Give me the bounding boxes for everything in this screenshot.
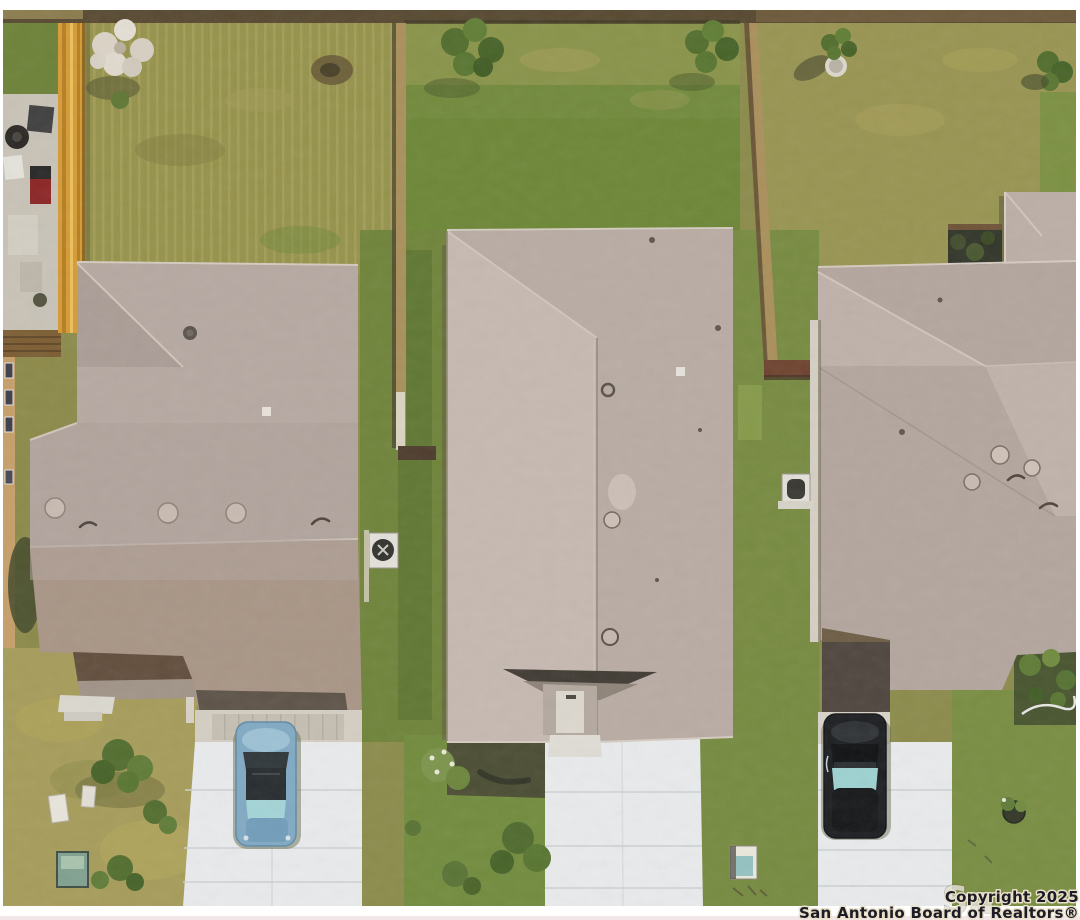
grain-overlay (3, 10, 1076, 906)
watermark-board: San Antonio Board of Realtors® (799, 904, 1079, 920)
aerial-photo: Sa Copyright 2025 San Antonio Board of R… (0, 0, 1080, 920)
